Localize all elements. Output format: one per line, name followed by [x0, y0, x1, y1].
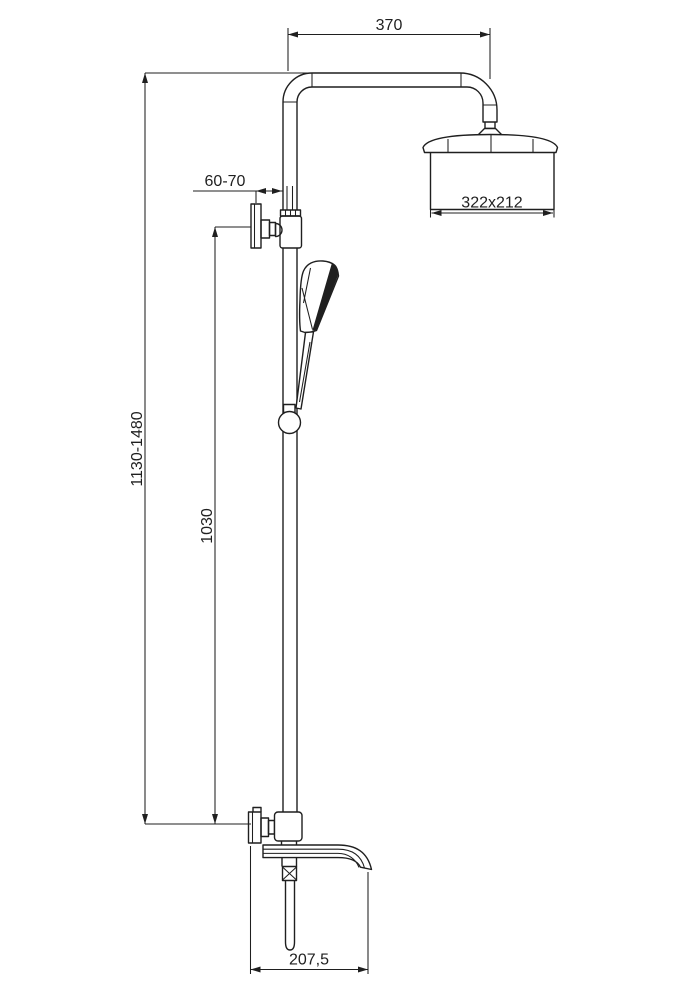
lower-outlet	[282, 858, 297, 950]
arm-segment-ticks	[283, 73, 497, 105]
riser-inner-wall	[287, 186, 293, 210]
rail-span-label: 1030	[199, 508, 216, 544]
pull-rod	[286, 881, 295, 951]
spout-neck-lower	[282, 858, 297, 867]
dimension-spout-reach: 207,5	[251, 846, 369, 974]
shower-system-drawing: 322x212	[0, 0, 675, 1000]
wall-flange-upper	[251, 204, 261, 248]
dimension-head-size: 322x212	[431, 195, 555, 218]
spout-reach-label: 207,5	[289, 952, 329, 969]
hose-nut	[283, 867, 297, 881]
mixer-valve	[249, 808, 303, 846]
hand-shower	[279, 261, 339, 434]
dimension-rail-span: 1030	[199, 227, 251, 824]
mixer-knob	[261, 818, 275, 837]
overhead-shower-head: 322x212	[423, 122, 558, 218]
mixer-body	[275, 812, 303, 841]
overall-height-label: 1130-1480	[129, 411, 146, 486]
technical-drawing-canvas: 322x212	[0, 0, 675, 1000]
dimension-arm-reach: 370	[288, 17, 490, 79]
diverter-body	[280, 210, 302, 248]
wall-flange-lower	[249, 808, 262, 844]
head-rim	[423, 135, 558, 153]
head-size-label: 322x212	[461, 195, 522, 212]
diverter-knob	[261, 220, 282, 238]
arm-reach-label: 370	[376, 17, 403, 34]
diverter-valve	[251, 204, 302, 248]
wall-offset-label: 60-70	[205, 173, 246, 190]
tub-spout	[263, 845, 372, 870]
riser-pipe	[283, 186, 297, 812]
dimension-wall-offset: 60-70	[193, 173, 283, 203]
